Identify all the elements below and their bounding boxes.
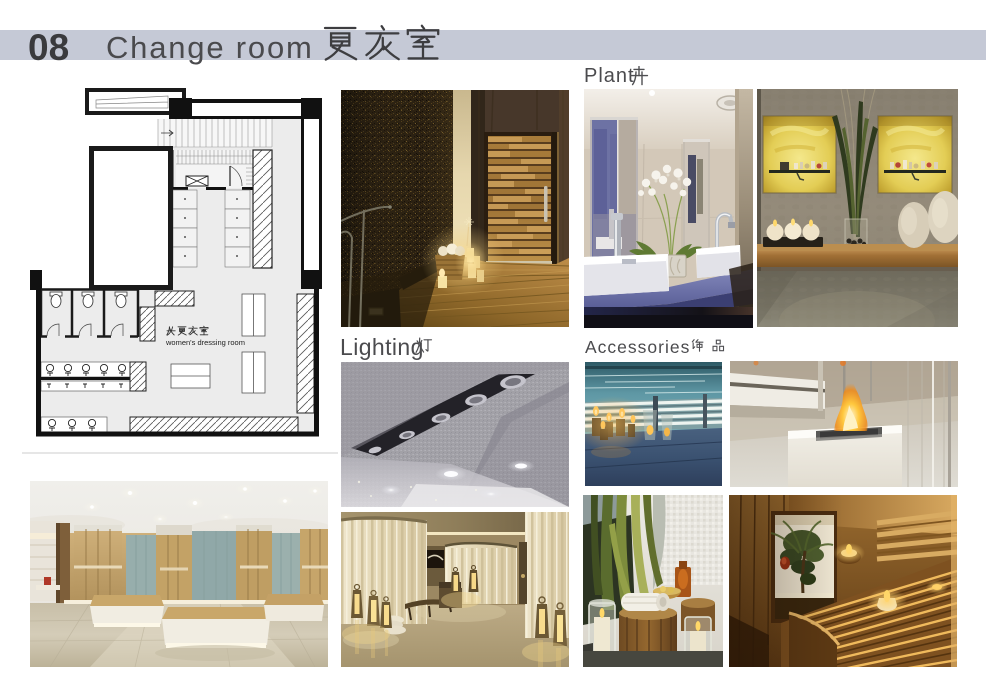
svg-text:women's dressing room: women's dressing room: [165, 338, 245, 347]
